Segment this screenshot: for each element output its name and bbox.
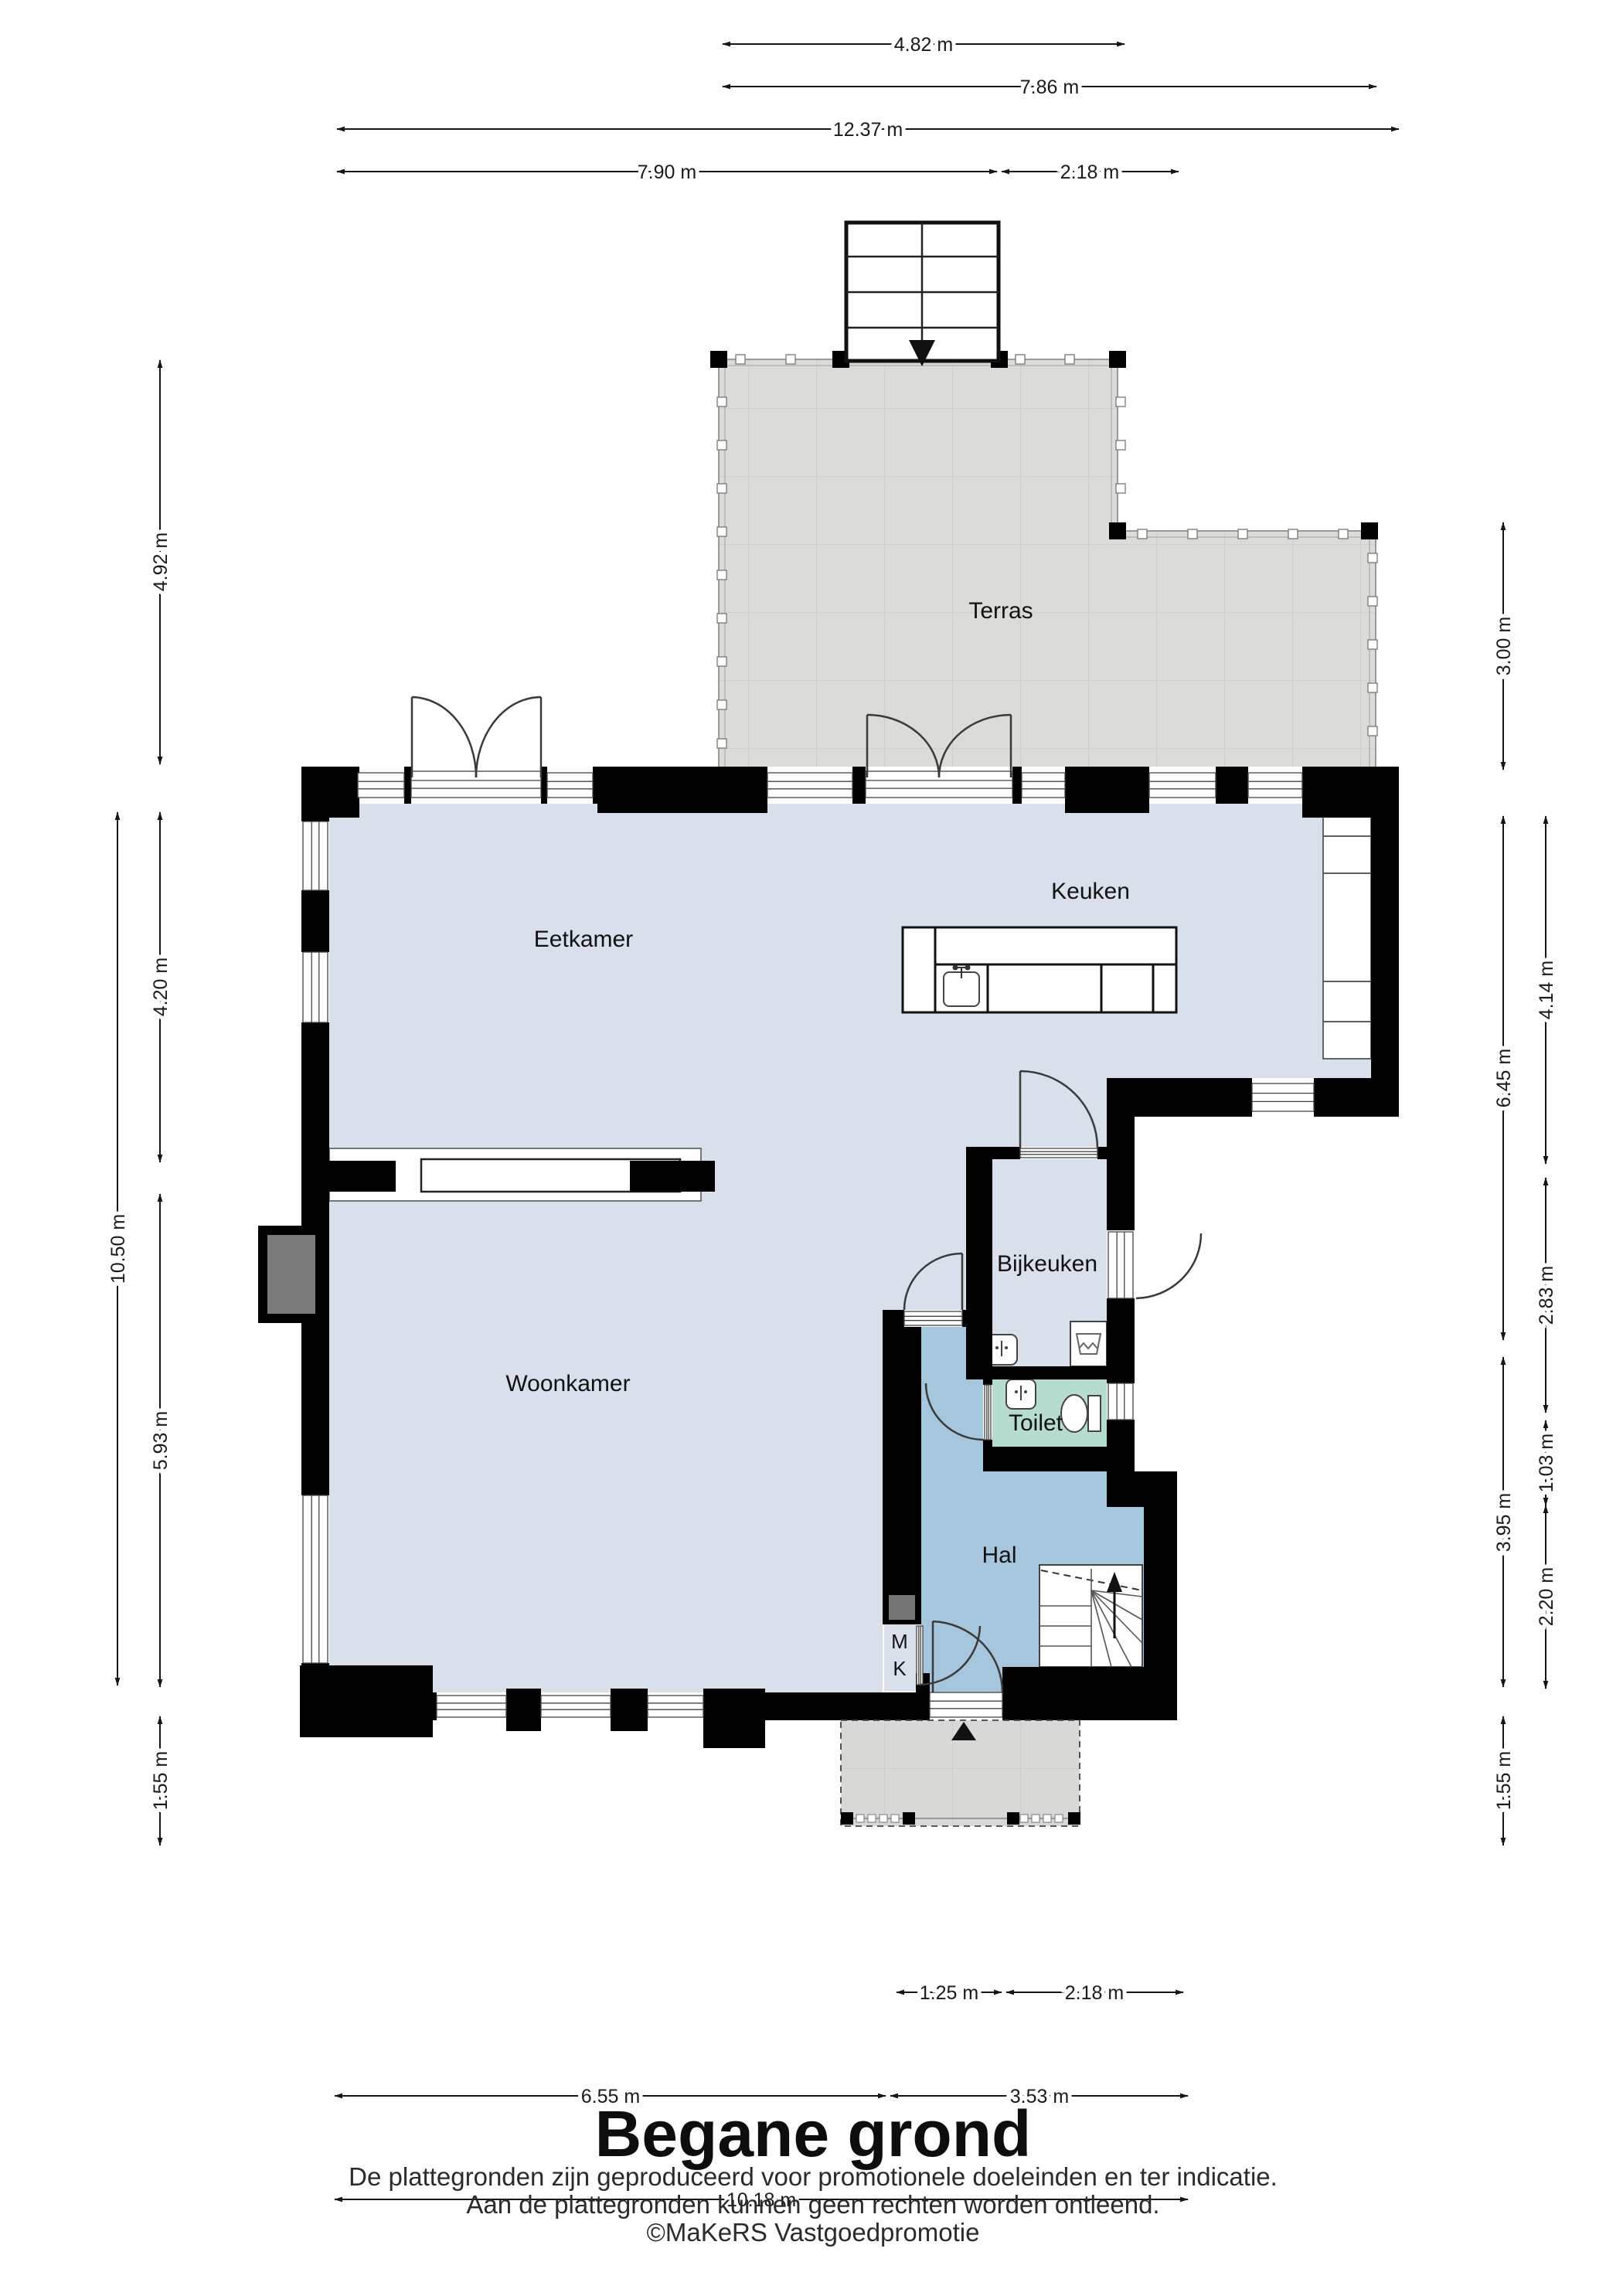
page-title: Begane grond (595, 2097, 1032, 2170)
room-label-eetkamer: Eetkamer (534, 927, 633, 952)
toilet-bowl-icon (1061, 1395, 1087, 1432)
credit-line: ©MaKeRS Vastgoedpromotie (647, 2218, 980, 2247)
dimension-label: 4.14 m (1536, 961, 1557, 1019)
room-divider (329, 1148, 715, 1201)
terrace-stairs (846, 223, 999, 366)
room-label-hal: Hal (982, 1543, 1016, 1568)
dimension-label: 1.03 m (1536, 1434, 1557, 1492)
disclaimer-line-2: Aan de plattegronden kunnen geen rechten… (466, 2190, 1159, 2219)
dimension-label: 12.37 m (833, 119, 903, 141)
room-label-bijkeuken: Bijkeuken (997, 1251, 1097, 1277)
terrace-tiles (719, 359, 1376, 767)
room-floor-passage-south (883, 1147, 966, 1310)
room-label-mk-m: M (891, 1630, 908, 1653)
dimension-label: 2.83 m (1536, 1266, 1557, 1325)
dimension-label: 2.18 m (1060, 162, 1119, 183)
french-door-eetkamer-terras (412, 697, 541, 777)
kitchen-cabinets (1323, 798, 1371, 1059)
terrace-area (710, 351, 1378, 767)
room-floor-woonkamer (329, 1202, 883, 1692)
porch (841, 1720, 1080, 1826)
room-floor-keuken-eetkamer (329, 804, 1371, 1078)
door-bijkeuken-exterior (1136, 1233, 1201, 1298)
dimension-label: 1.55 m (1493, 1751, 1515, 1810)
room-floor-hal-a (921, 1327, 966, 1366)
room-label-mk-k: K (893, 1657, 907, 1680)
dimension-label: 6.45 m (1493, 1049, 1515, 1107)
room-label-toilet: Toilet (1009, 1410, 1063, 1436)
dimension-label: 4.20 m (150, 958, 172, 1016)
room-floor-hal-b (921, 1366, 983, 1471)
dimension-label: 5.93 m (150, 1411, 172, 1470)
dimension-label: 2.20 m (1536, 1567, 1557, 1626)
dimension-label: 10.50 m (107, 1214, 129, 1284)
dimension-label: 7.86 m (1020, 77, 1079, 98)
floorplan-canvas: 4.82 m 7.86 m 12.37 m 7.90 m 2.18 m 4.92… (0, 0, 1623, 2296)
dimension-label: 3.00 m (1493, 617, 1515, 675)
floorplan-page: 4.82 m 7.86 m 12.37 m 7.90 m 2.18 m 4.92… (0, 0, 1623, 2296)
dimension-label: 3.95 m (1493, 1493, 1515, 1552)
toilet-tank (1088, 1396, 1101, 1431)
room-floors (329, 804, 1371, 1692)
disclaimer-line-1: De plattegronden zijn geproduceerd voor … (349, 2162, 1278, 2191)
room-label-woonkamer: Woonkamer (505, 1371, 630, 1396)
kitchen-island (903, 927, 1176, 1012)
room-floor-eetkamer-south (329, 1078, 1107, 1147)
room-floor-passage (715, 1147, 883, 1202)
washing-machine-icon (1070, 1321, 1107, 1366)
dimension-label: 1.55 m (150, 1751, 172, 1810)
interior-stairs (1039, 1565, 1142, 1667)
dimension-label: 7.90 m (638, 162, 696, 183)
room-label-keuken: Keuken (1051, 879, 1130, 904)
dimension-label: 4.82 m (894, 34, 953, 56)
dimension-label: 2.18 m (1065, 1982, 1124, 2004)
dimension-label: 1.25 m (920, 1982, 978, 2004)
room-label-terras: Terras (968, 598, 1033, 624)
chimney (258, 1226, 329, 1323)
dimension-label: 4.92 m (150, 532, 172, 591)
